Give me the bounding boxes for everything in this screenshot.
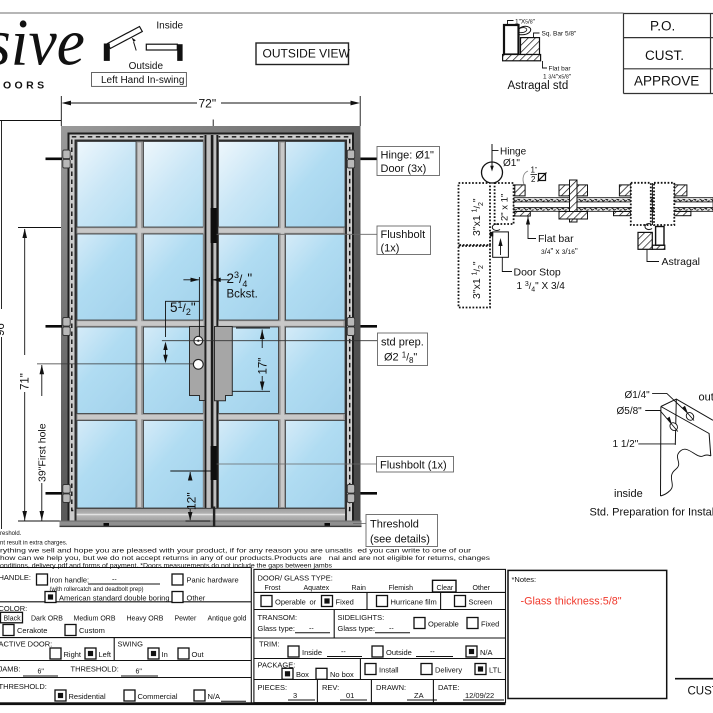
svg-text:(see details): (see details) [370, 534, 430, 546]
svg-text:--: -- [389, 625, 394, 632]
svg-text:Hinge: Hinge [500, 147, 527, 158]
svg-text:LTL: LTL [489, 665, 501, 674]
svg-text:Other: Other [187, 593, 206, 602]
svg-text:Inside: Inside [302, 648, 322, 657]
svg-text:Flemish: Flemish [389, 585, 414, 592]
svg-text:1 3/4" X 3/4: 1 3/4" X 3/4 [517, 281, 566, 294]
svg-text:Threshold: Threshold [370, 519, 419, 531]
svg-text:51/2": 51/2" [170, 300, 196, 317]
svg-text:REV:: REV: [322, 683, 339, 692]
svg-text:how can we help you, but we do: how can we help you, but we do not accep… [0, 556, 490, 562]
svg-text:17": 17" [258, 358, 270, 375]
svg-text:1": 1" [531, 166, 538, 175]
svg-text:Custom: Custom [79, 626, 105, 635]
svg-text:Box: Box [296, 670, 309, 679]
svg-text:Clear: Clear [437, 585, 454, 592]
svg-text:Flat bar: Flat bar [549, 66, 572, 73]
svg-text:or: or [310, 597, 317, 606]
svg-text:Aquatex: Aquatex [304, 585, 330, 592]
svg-text:N/A: N/A [480, 648, 493, 657]
svg-text:Outside: Outside [129, 61, 164, 72]
svg-text:Door (3x): Door (3x) [381, 163, 427, 175]
svg-text:Outside: Outside [386, 648, 412, 657]
svg-text:Frost: Frost [265, 585, 281, 592]
svg-text:Glass type:: Glass type: [258, 624, 296, 633]
svg-text:ZA: ZA [414, 691, 424, 700]
svg-text:Inside: Inside [156, 21, 183, 32]
svg-text:39"First hole: 39"First hole [37, 423, 49, 482]
svg-text:Medium ORB: Medium ORB [74, 616, 116, 623]
svg-text:6": 6" [136, 669, 143, 676]
svg-text:12": 12" [185, 492, 199, 510]
svg-text:THRESHOLD:: THRESHOLD: [0, 682, 47, 691]
svg-text:Flat bar: Flat bar [538, 233, 574, 245]
svg-text:Ø5/8": Ø5/8" [617, 406, 643, 417]
svg-text:Dark ORB: Dark ORB [31, 616, 63, 623]
svg-text:SIDELIGHTS:: SIDELIGHTS: [338, 613, 385, 622]
svg-text:P.O.: P.O. [650, 19, 675, 34]
svg-text:No box: No box [330, 670, 354, 679]
svg-text:COLOR:: COLOR: [0, 604, 27, 613]
svg-text:Screen: Screen [469, 597, 493, 606]
svg-text:DOORS: DOORS [0, 80, 48, 92]
svg-text:CUST.: CUST. [645, 48, 684, 63]
svg-text:Hinge: Ø1": Hinge: Ø1" [381, 150, 435, 162]
svg-text:*Notes:: *Notes: [512, 575, 537, 584]
svg-text:--: -- [309, 625, 314, 632]
svg-text:Hurricane film: Hurricane film [391, 597, 437, 606]
svg-text:--: -- [112, 577, 117, 584]
svg-text:Astragal: Astragal [662, 256, 701, 268]
svg-text:Other: Other [473, 585, 491, 592]
svg-text:Delivery: Delivery [435, 665, 462, 674]
svg-text:2" x 1": 2" x 1" [500, 194, 511, 221]
svg-text:6": 6" [38, 669, 45, 676]
svg-text:1 1/2": 1 1/2" [613, 439, 639, 450]
svg-text:72": 72" [199, 97, 217, 111]
svg-text:Rain: Rain [352, 585, 367, 592]
svg-text:inside: inside [614, 488, 643, 500]
svg-text:CUSTOM: CUSTOM [688, 686, 713, 698]
svg-text:Fixed: Fixed [336, 597, 354, 606]
svg-text:SWING: SWING [118, 640, 144, 649]
svg-text:Residential: Residential [69, 692, 106, 701]
svg-text:Glass type:: Glass type: [338, 624, 376, 633]
svg-text:Antique gold: Antique gold [208, 616, 247, 623]
svg-text:1"X5/8": 1"X5/8" [515, 19, 536, 26]
svg-text:nt result in extra charges.: nt result in extra charges. [0, 541, 68, 547]
svg-text:Operable: Operable [275, 597, 306, 606]
svg-text:N/A: N/A [208, 692, 221, 701]
svg-text:onditions, delivery pdf and fo: onditions, delivery pdf and forms of pay… [0, 564, 332, 570]
svg-text:DATE:: DATE: [438, 683, 460, 692]
svg-text:PIECES:: PIECES: [258, 683, 288, 692]
svg-text:Out: Out [192, 650, 205, 659]
svg-text:Fixed: Fixed [481, 619, 499, 628]
svg-text:Flushbolt (1x): Flushbolt (1x) [380, 460, 447, 472]
svg-text:-Glass thickness:5/8": -Glass thickness:5/8" [521, 596, 622, 608]
svg-text:In: In [162, 650, 168, 659]
svg-text:Panic hardware: Panic hardware [187, 576, 239, 585]
svg-text:Std. Preparation for Installat: Std. Preparation for Installation [590, 507, 713, 519]
svg-text:OUTSIDE VIEW: OUTSIDE VIEW [263, 47, 351, 61]
svg-text:rything we sell and hope you a: rything we sell and hope you are pleased… [0, 549, 471, 555]
svg-text:Heavy ORB: Heavy ORB [127, 616, 164, 623]
svg-text:Right: Right [64, 650, 82, 659]
svg-text:THRESHOLD:: THRESHOLD: [71, 665, 119, 674]
svg-text:DOOR/ GLASS TYPE:: DOOR/ GLASS TYPE: [258, 573, 333, 582]
svg-text:12/09/22: 12/09/22 [465, 691, 494, 700]
svg-text:Ø1": Ø1" [503, 158, 520, 169]
svg-text:APPROVE: APPROVE [634, 74, 699, 89]
svg-text:Astragal std: Astragal std [508, 80, 569, 92]
svg-text:Ø1/4": Ø1/4" [625, 390, 651, 401]
svg-text:Door Stop: Door Stop [514, 267, 561, 279]
svg-text:Commercial: Commercial [138, 692, 178, 701]
svg-text:(1x): (1x) [381, 243, 400, 255]
svg-text:sive: sive [0, 6, 85, 80]
svg-text:Black: Black [4, 616, 22, 623]
svg-text:American standard double borin: American standard double boring [59, 593, 170, 602]
svg-text:Operable: Operable [428, 619, 459, 628]
svg-text:(with rollercatch and deadbolt: (with rollercatch and deadbolt prep) [50, 587, 144, 593]
svg-text:3/4" x 3/16": 3/4" x 3/16" [541, 247, 578, 256]
svg-text:TRIM:: TRIM: [259, 639, 279, 648]
svg-text:Sq. Bar 5/8": Sq. Bar 5/8" [542, 31, 578, 38]
svg-text:DRAWN:: DRAWN: [376, 683, 406, 692]
svg-text:Pewter: Pewter [175, 616, 197, 623]
svg-text:01: 01 [346, 691, 354, 700]
svg-text:71": 71" [20, 373, 32, 390]
svg-text:std prep.: std prep. [381, 337, 424, 349]
svg-text:JAMB:: JAMB: [0, 665, 21, 674]
svg-text:3: 3 [293, 691, 297, 700]
svg-text:Flushbolt: Flushbolt [381, 229, 426, 241]
svg-text:--: -- [430, 649, 435, 656]
svg-text:TRANSOM:: TRANSOM: [258, 613, 298, 622]
svg-text:Left Hand In-swing: Left Hand In-swing [101, 75, 184, 86]
svg-text:Iron handle:: Iron handle: [50, 576, 90, 585]
svg-text:96": 96" [0, 319, 7, 336]
svg-text:Bckst.: Bckst. [227, 289, 258, 301]
svg-text:ACTIVE DOOR:: ACTIVE DOOR: [0, 640, 52, 649]
svg-text:Install: Install [379, 665, 399, 674]
svg-text:HANDLE:: HANDLE: [0, 573, 31, 582]
svg-text:reshold.: reshold. [0, 531, 22, 537]
svg-text:outside: outside [699, 392, 713, 404]
svg-text:Left: Left [99, 650, 112, 659]
svg-text:2: 2 [531, 175, 536, 184]
svg-text:--: -- [341, 649, 346, 656]
svg-text:Cerakote: Cerakote [17, 626, 47, 635]
